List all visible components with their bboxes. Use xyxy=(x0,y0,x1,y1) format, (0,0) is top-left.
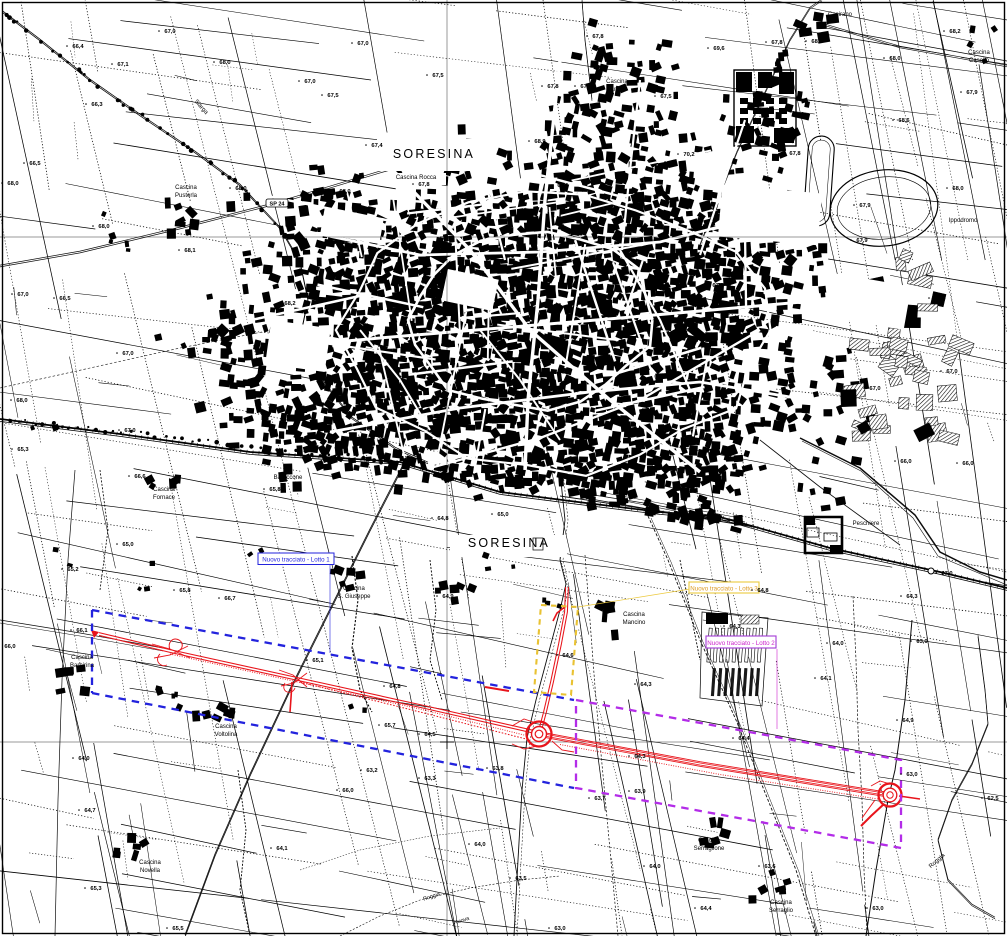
svg-text:S. Giuseppe: S. Giuseppe xyxy=(337,594,371,600)
svg-text:68,0: 68,0 xyxy=(219,60,230,66)
svg-text:67,5: 67,5 xyxy=(660,94,672,100)
svg-text:64,0: 64,0 xyxy=(474,842,485,848)
svg-text:Baraccone: Baraccone xyxy=(274,475,303,481)
svg-text:Peschiere: Peschiere xyxy=(853,521,880,527)
svg-text:70,2: 70,2 xyxy=(683,152,694,158)
svg-text:Cascina: Cascina xyxy=(698,838,720,844)
svg-text:64,5: 64,5 xyxy=(424,732,436,738)
svg-text:69,6: 69,6 xyxy=(713,46,725,52)
svg-text:64,8: 64,8 xyxy=(757,588,769,594)
svg-text:66,1: 66,1 xyxy=(76,628,88,634)
svg-text:65,1: 65,1 xyxy=(312,658,324,664)
svg-text:Casello: Casello xyxy=(969,58,990,64)
svg-text:64,1: 64,1 xyxy=(820,676,832,682)
svg-text:68,0: 68,0 xyxy=(952,186,963,192)
svg-text:Cascina: Cascina xyxy=(968,50,990,56)
svg-text:68,1: 68,1 xyxy=(557,183,569,189)
svg-text:Serraglio: Serraglio xyxy=(769,908,794,914)
svg-text:66,0: 66,0 xyxy=(900,459,911,465)
svg-text:68,0: 68,0 xyxy=(934,296,945,302)
svg-text:66,5: 66,5 xyxy=(29,161,41,167)
svg-text:Cascina: Cascina xyxy=(175,185,197,191)
svg-text:67,0: 67,0 xyxy=(124,428,135,434)
svg-text:63,9: 63,9 xyxy=(634,789,646,795)
svg-text:68,6: 68,6 xyxy=(898,118,910,124)
svg-text:Casirano: Casirano xyxy=(828,12,853,18)
svg-text:65,2: 65,2 xyxy=(67,567,78,573)
svg-text:67,0: 67,0 xyxy=(941,571,952,577)
svg-text:65,7: 65,7 xyxy=(384,723,395,729)
svg-text:64,0: 64,0 xyxy=(832,641,843,647)
svg-text:62,5: 62,5 xyxy=(987,796,999,802)
svg-text:68,4: 68,4 xyxy=(811,39,823,45)
svg-text:64,3: 64,3 xyxy=(640,682,652,688)
svg-text:67,5: 67,5 xyxy=(432,73,444,79)
svg-text:Nuovo tracciato - Lotto 3: Nuovo tracciato - Lotto 3 xyxy=(690,586,758,593)
svg-text:67,8: 67,8 xyxy=(789,151,801,157)
svg-text:67,4: 67,4 xyxy=(371,143,383,149)
svg-text:64,3: 64,3 xyxy=(906,594,918,600)
svg-text:67,9: 67,9 xyxy=(856,238,868,244)
svg-text:SORESINA: SORESINA xyxy=(393,147,475,161)
svg-text:63,7: 63,7 xyxy=(594,796,605,802)
svg-text:63,3: 63,3 xyxy=(424,776,436,782)
svg-text:63,2: 63,2 xyxy=(366,768,377,774)
svg-text:Serraglione: Serraglione xyxy=(694,846,725,852)
svg-text:67,3: 67,3 xyxy=(712,283,724,289)
svg-text:63,0: 63,0 xyxy=(906,772,917,778)
svg-text:64,4: 64,4 xyxy=(700,906,712,912)
svg-text:Nuovo tracciato - Lotto 2: Nuovo tracciato - Lotto 2 xyxy=(707,640,775,647)
svg-text:Cascina: Cascina xyxy=(153,487,175,493)
svg-text:67,5: 67,5 xyxy=(580,84,592,90)
svg-text:65,5: 65,5 xyxy=(172,926,184,932)
svg-text:63,0: 63,0 xyxy=(916,639,927,645)
svg-text:65,0: 65,0 xyxy=(497,512,508,518)
svg-text:64,6: 64,6 xyxy=(562,653,574,659)
svg-text:Cascina: Cascina xyxy=(606,79,628,85)
svg-text:Cascina: Cascina xyxy=(770,900,792,906)
svg-text:Novella: Novella xyxy=(140,868,161,874)
svg-text:64,8: 64,8 xyxy=(389,684,401,690)
svg-text:65,8: 65,8 xyxy=(269,487,281,493)
svg-text:Cascina: Cascina xyxy=(71,655,93,661)
svg-text:67,0: 67,0 xyxy=(164,29,175,35)
svg-text:63,0: 63,0 xyxy=(554,926,565,932)
svg-text:Ippodromo: Ippodromo xyxy=(949,218,978,224)
svg-text:SP 24: SP 24 xyxy=(270,202,286,208)
svg-text:66,5: 66,5 xyxy=(59,296,71,302)
svg-text:Cascina: Cascina xyxy=(139,860,161,866)
svg-text:67,0: 67,0 xyxy=(17,292,28,298)
svg-text:Pusterla: Pusterla xyxy=(175,193,198,199)
svg-text:64,9: 64,9 xyxy=(902,718,914,724)
svg-text:66,0: 66,0 xyxy=(962,461,973,467)
svg-text:64,1: 64,1 xyxy=(276,846,288,852)
svg-text:66,4: 66,4 xyxy=(72,44,84,50)
svg-text:65,3: 65,3 xyxy=(90,886,102,892)
svg-text:66,0: 66,0 xyxy=(342,788,353,794)
svg-text:66,0: 66,0 xyxy=(4,644,15,650)
svg-text:68,2: 68,2 xyxy=(949,29,960,35)
svg-text:Cascina Rocca: Cascina Rocca xyxy=(396,175,437,181)
svg-text:63,0: 63,0 xyxy=(872,906,883,912)
svg-text:64,0: 64,0 xyxy=(649,864,660,870)
svg-text:66,7: 66,7 xyxy=(224,596,235,602)
svg-text:Mancino: Mancino xyxy=(623,620,646,626)
svg-text:64,0: 64,0 xyxy=(78,756,89,762)
svg-text:Nuovo tracciato - Lotto 1: Nuovo tracciato - Lotto 1 xyxy=(262,557,330,564)
svg-text:67,9: 67,9 xyxy=(966,90,978,96)
svg-text:68,1: 68,1 xyxy=(184,248,196,254)
svg-text:67,5: 67,5 xyxy=(327,93,339,99)
svg-text:Lantica: Lantica xyxy=(607,87,627,93)
svg-text:64,3: 64,3 xyxy=(729,624,741,630)
svg-text:67,8: 67,8 xyxy=(418,182,430,188)
svg-text:67,0: 67,0 xyxy=(946,369,957,375)
svg-text:68,0: 68,0 xyxy=(7,181,18,187)
svg-text:63,5: 63,5 xyxy=(515,876,527,882)
svg-text:Cascina: Cascina xyxy=(623,612,645,618)
svg-text:68,0: 68,0 xyxy=(235,186,246,192)
svg-text:64,8: 64,8 xyxy=(437,516,449,522)
svg-text:63,6: 63,6 xyxy=(764,864,776,870)
svg-text:67,1: 67,1 xyxy=(117,62,129,68)
svg-text:68,0: 68,0 xyxy=(16,398,27,404)
svg-text:68,0: 68,0 xyxy=(339,189,350,195)
svg-text:65,8: 65,8 xyxy=(179,588,191,594)
svg-text:67,8: 67,8 xyxy=(592,34,604,40)
svg-text:Cascina: Cascina xyxy=(343,586,365,592)
svg-text:68,0: 68,0 xyxy=(98,224,109,230)
svg-text:67,0: 67,0 xyxy=(122,351,133,357)
svg-text:68,0: 68,0 xyxy=(889,56,900,62)
svg-text:64,3: 64,3 xyxy=(634,754,646,760)
svg-text:67,8: 67,8 xyxy=(547,84,559,90)
svg-text:66,3: 66,3 xyxy=(91,102,103,108)
svg-text:66,6: 66,6 xyxy=(134,474,146,480)
svg-text:67,0: 67,0 xyxy=(304,79,315,85)
svg-text:Barbirina: Barbirina xyxy=(70,663,95,669)
svg-text:67,8: 67,8 xyxy=(771,40,783,46)
svg-text:64,7: 64,7 xyxy=(84,808,95,814)
svg-text:67,0: 67,0 xyxy=(869,386,880,392)
svg-text:Cascina: Cascina xyxy=(215,724,237,730)
svg-text:67,9: 67,9 xyxy=(859,203,871,209)
svg-text:65,0: 65,0 xyxy=(122,542,133,548)
svg-text:Fornace: Fornace xyxy=(153,495,176,501)
svg-text:64,4: 64,4 xyxy=(738,736,750,742)
svg-text:68,2: 68,2 xyxy=(284,301,295,307)
svg-text:67,0: 67,0 xyxy=(357,41,368,47)
svg-text:Voltolina: Voltolina xyxy=(215,732,238,738)
svg-text:64,9: 64,9 xyxy=(442,594,454,600)
svg-text:65,3: 65,3 xyxy=(17,447,29,453)
svg-text:63,8: 63,8 xyxy=(492,766,504,772)
svg-text:68,9: 68,9 xyxy=(534,139,546,145)
